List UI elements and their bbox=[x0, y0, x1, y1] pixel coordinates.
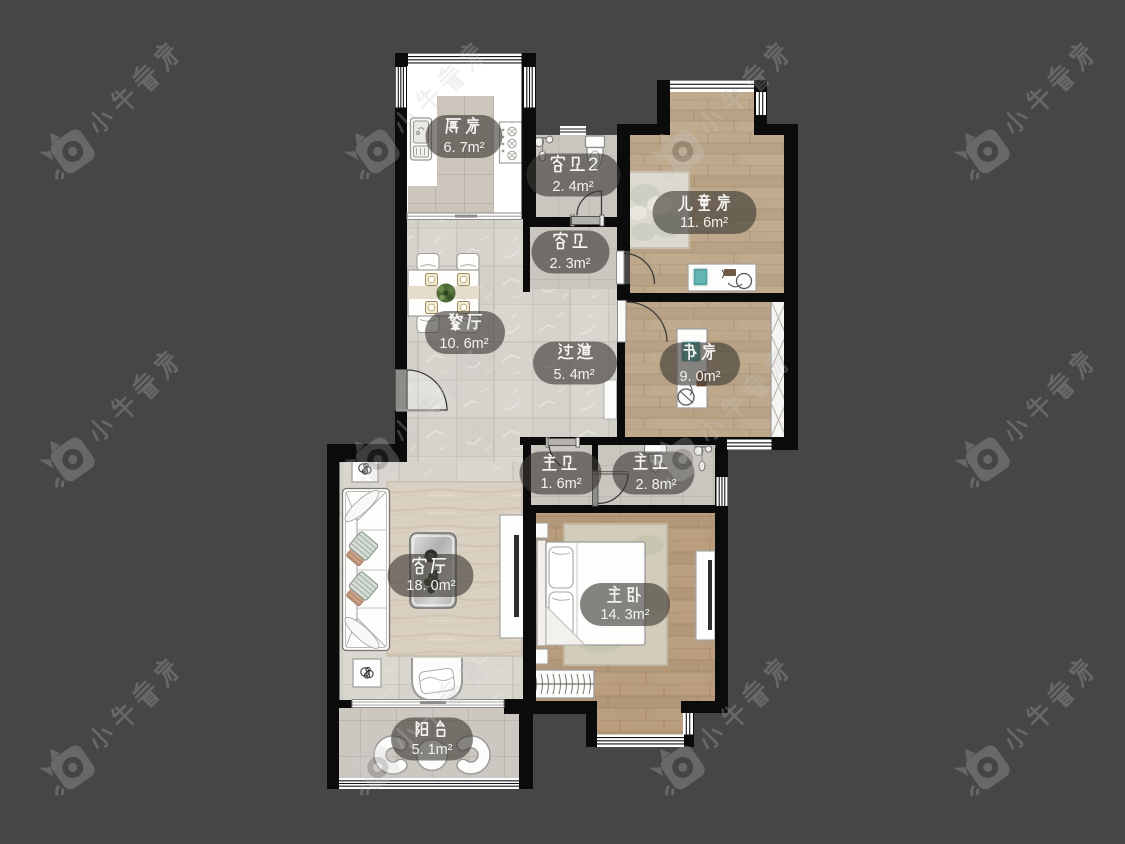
svg-text:1. 6m²: 1. 6m² bbox=[540, 476, 581, 492]
svg-text:18. 0m²: 18. 0m² bbox=[406, 578, 455, 594]
svg-text:2: 2 bbox=[588, 155, 599, 176]
svg-text:9. 0m²: 9. 0m² bbox=[679, 369, 720, 385]
svg-text:6. 7m²: 6. 7m² bbox=[443, 140, 484, 156]
svg-text:2. 8m²: 2. 8m² bbox=[635, 477, 676, 493]
svg-text:14. 3m²: 14. 3m² bbox=[600, 607, 649, 623]
svg-text:5. 1m²: 5. 1m² bbox=[411, 742, 452, 758]
svg-text:10. 6m²: 10. 6m² bbox=[439, 336, 488, 352]
svg-text:2. 4m²: 2. 4m² bbox=[552, 179, 593, 195]
svg-text:5. 4m²: 5. 4m² bbox=[553, 367, 594, 383]
svg-text:2. 3m²: 2. 3m² bbox=[549, 256, 590, 272]
svg-text:11. 6m²: 11. 6m² bbox=[680, 215, 728, 231]
